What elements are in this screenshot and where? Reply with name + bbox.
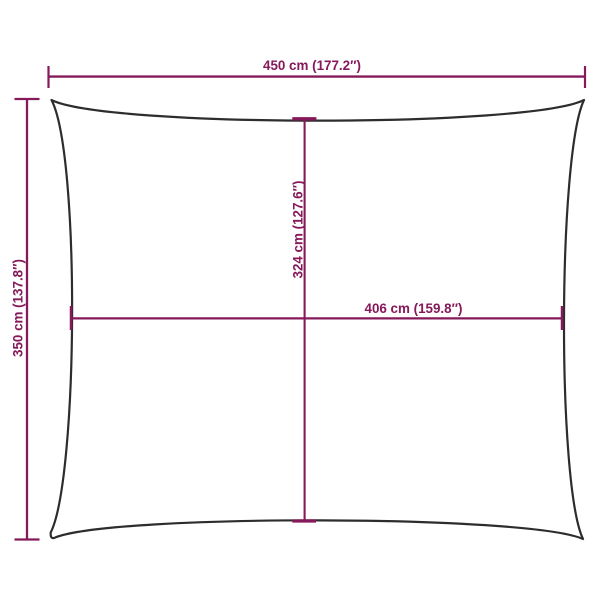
svg-text:350 cm (137.8″): 350 cm (137.8″)	[10, 259, 25, 357]
svg-text:324 cm (127.6″): 324 cm (127.6″)	[291, 181, 306, 279]
svg-text:450 cm (177.2″): 450 cm (177.2″)	[263, 58, 361, 73]
svg-text:406 cm (159.8″): 406 cm (159.8″)	[365, 301, 463, 316]
